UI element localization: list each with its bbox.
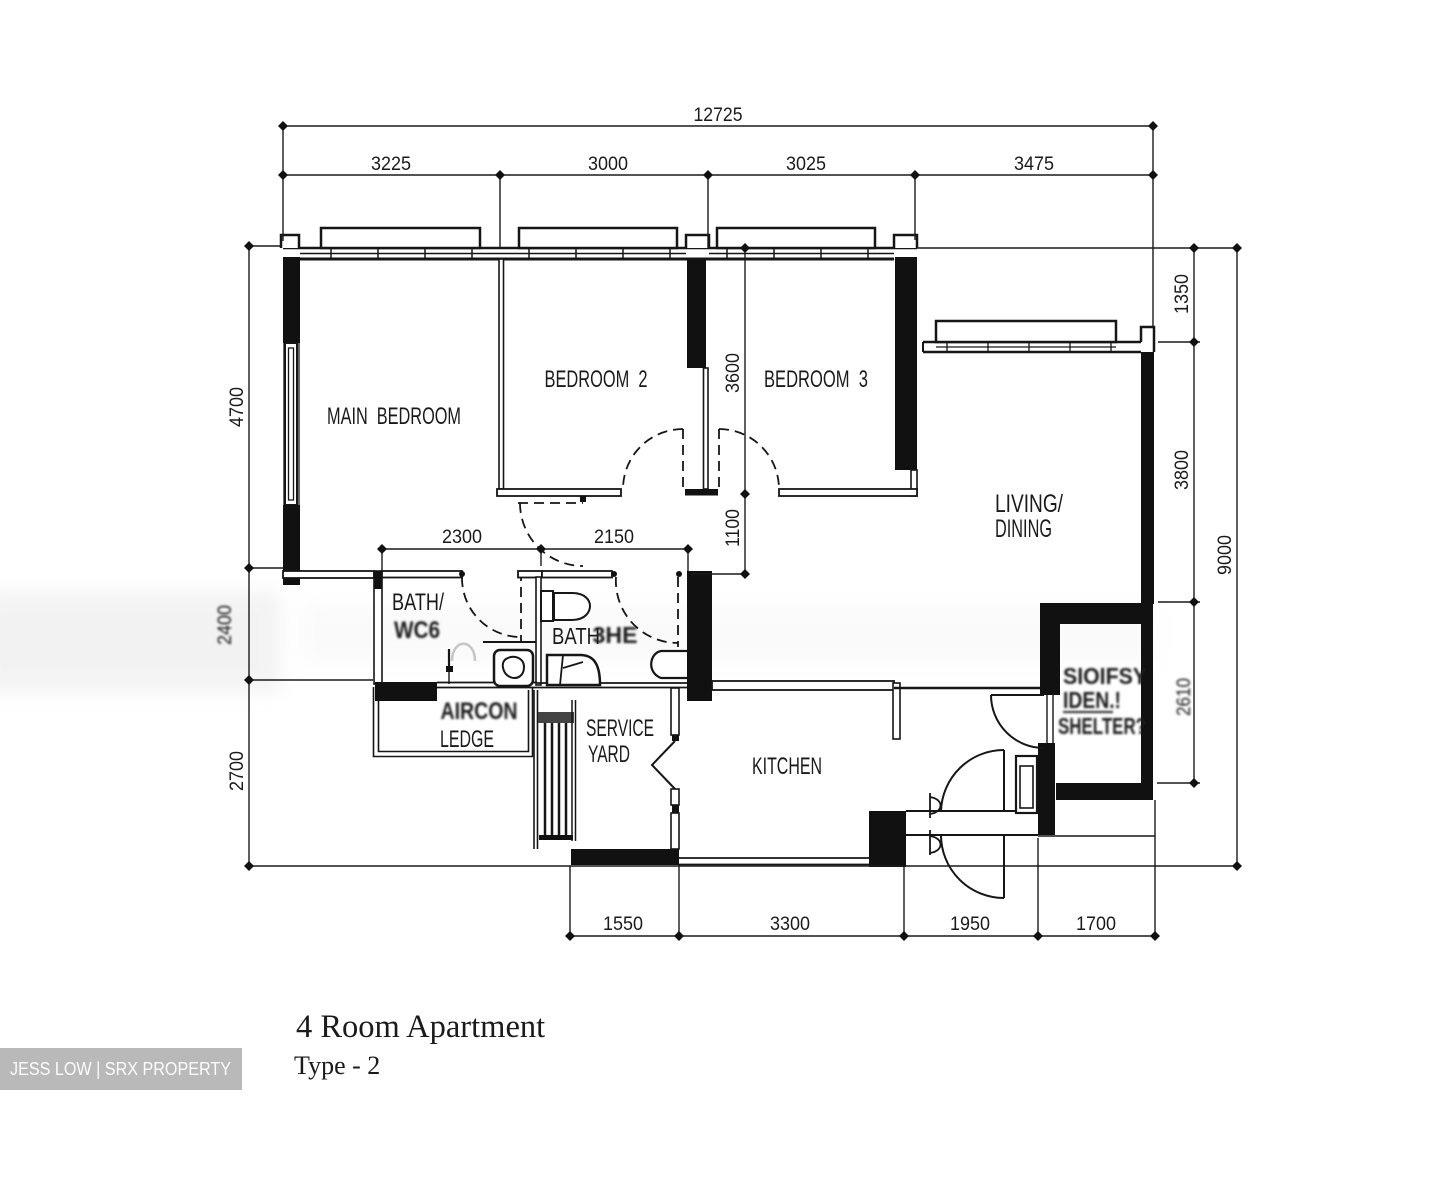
svg-text:2400: 2400 xyxy=(215,605,236,645)
svg-text:2150: 2150 xyxy=(594,527,634,548)
svg-text:SHELTER?: SHELTER? xyxy=(1058,713,1146,739)
svg-text:1100: 1100 xyxy=(723,509,744,547)
svg-text:1950: 1950 xyxy=(950,914,990,935)
svg-text:WC6: WC6 xyxy=(394,617,440,644)
svg-text:BEDROOM 3: BEDROOM 3 xyxy=(764,366,868,393)
svg-text:DINING: DINING xyxy=(995,515,1052,543)
svg-text:SIOIFSY: SIOIFSY xyxy=(1063,663,1147,689)
svg-text:12725: 12725 xyxy=(694,105,743,126)
svg-text:3800: 3800 xyxy=(1172,450,1193,490)
svg-text:3000: 3000 xyxy=(588,154,628,175)
svg-text:LEDGE: LEDGE xyxy=(440,726,494,753)
svg-text:3600: 3600 xyxy=(723,353,744,393)
svg-text:Type - 2: Type - 2 xyxy=(294,1051,380,1080)
svg-text:4 Room Apartment: 4 Room Apartment xyxy=(296,1009,545,1045)
svg-text:AIRCON: AIRCON xyxy=(441,698,518,725)
svg-text:3300: 3300 xyxy=(770,914,810,935)
svg-text:3HE: 3HE xyxy=(593,622,638,648)
svg-text:LIVING/: LIVING/ xyxy=(995,490,1063,518)
svg-text:BATH/: BATH/ xyxy=(392,589,444,616)
svg-text:SERVICE: SERVICE xyxy=(586,715,654,742)
svg-text:1350: 1350 xyxy=(1172,274,1193,314)
svg-text:9000: 9000 xyxy=(1215,535,1236,575)
svg-text:3225: 3225 xyxy=(371,154,411,175)
svg-text:BEDROOM 2: BEDROOM 2 xyxy=(545,366,648,393)
svg-text:2610: 2610 xyxy=(1174,678,1195,716)
svg-text:1550: 1550 xyxy=(603,914,643,935)
svg-text:YARD: YARD xyxy=(588,741,630,768)
svg-text:JESS LOW | SRX PROPERTY: JESS LOW | SRX PROPERTY xyxy=(10,1059,231,1079)
svg-text:2300: 2300 xyxy=(442,527,482,548)
svg-text:3475: 3475 xyxy=(1014,154,1054,175)
svg-text:MAIN BEDROOM: MAIN BEDROOM xyxy=(327,403,461,430)
svg-text:2700: 2700 xyxy=(227,751,248,791)
svg-text:KITCHEN: KITCHEN xyxy=(752,753,822,780)
svg-text:1700: 1700 xyxy=(1076,914,1116,935)
svg-text:IDEN.!: IDEN.! xyxy=(1063,687,1121,713)
svg-text:3025: 3025 xyxy=(786,154,826,175)
svg-text:4700: 4700 xyxy=(227,387,248,427)
